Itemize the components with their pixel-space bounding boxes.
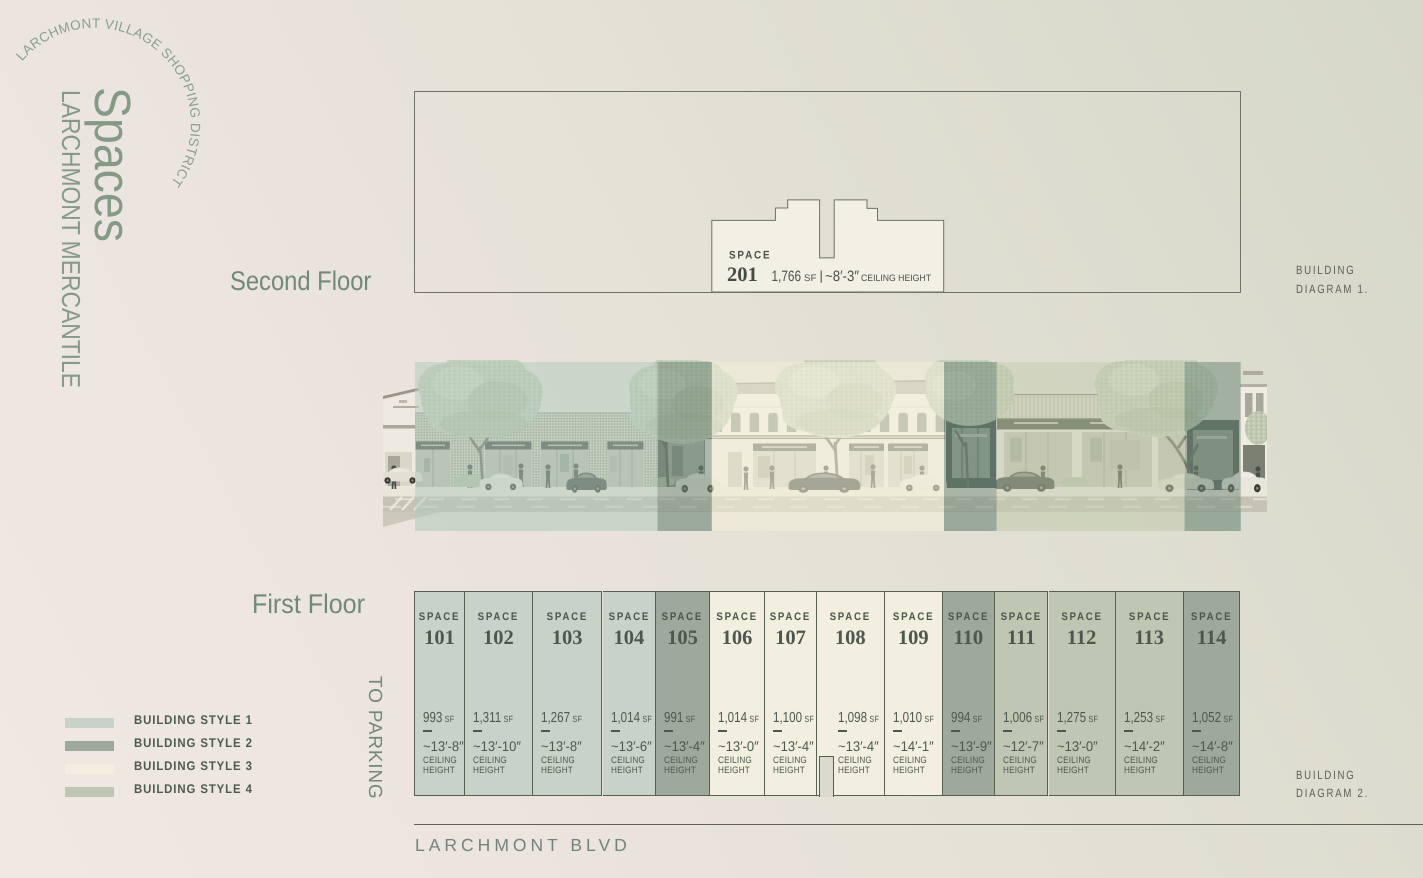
svg-text:SF: SF bbox=[804, 273, 817, 284]
svg-text:SPACE: SPACE bbox=[729, 250, 771, 262]
svg-text:1,766: 1,766 bbox=[772, 268, 802, 285]
svg-text:|: | bbox=[820, 268, 823, 283]
svg-text:CEILING HEIGHT: CEILING HEIGHT bbox=[861, 273, 931, 283]
svg-text:201: 201 bbox=[727, 264, 758, 286]
svg-text:~8′-3″: ~8′-3″ bbox=[825, 268, 860, 285]
svg-text:Spaces: Spaces bbox=[84, 87, 141, 242]
svg-text:LARCHMONT MERCANTILE: LARCHMONT MERCANTILE bbox=[56, 90, 86, 388]
